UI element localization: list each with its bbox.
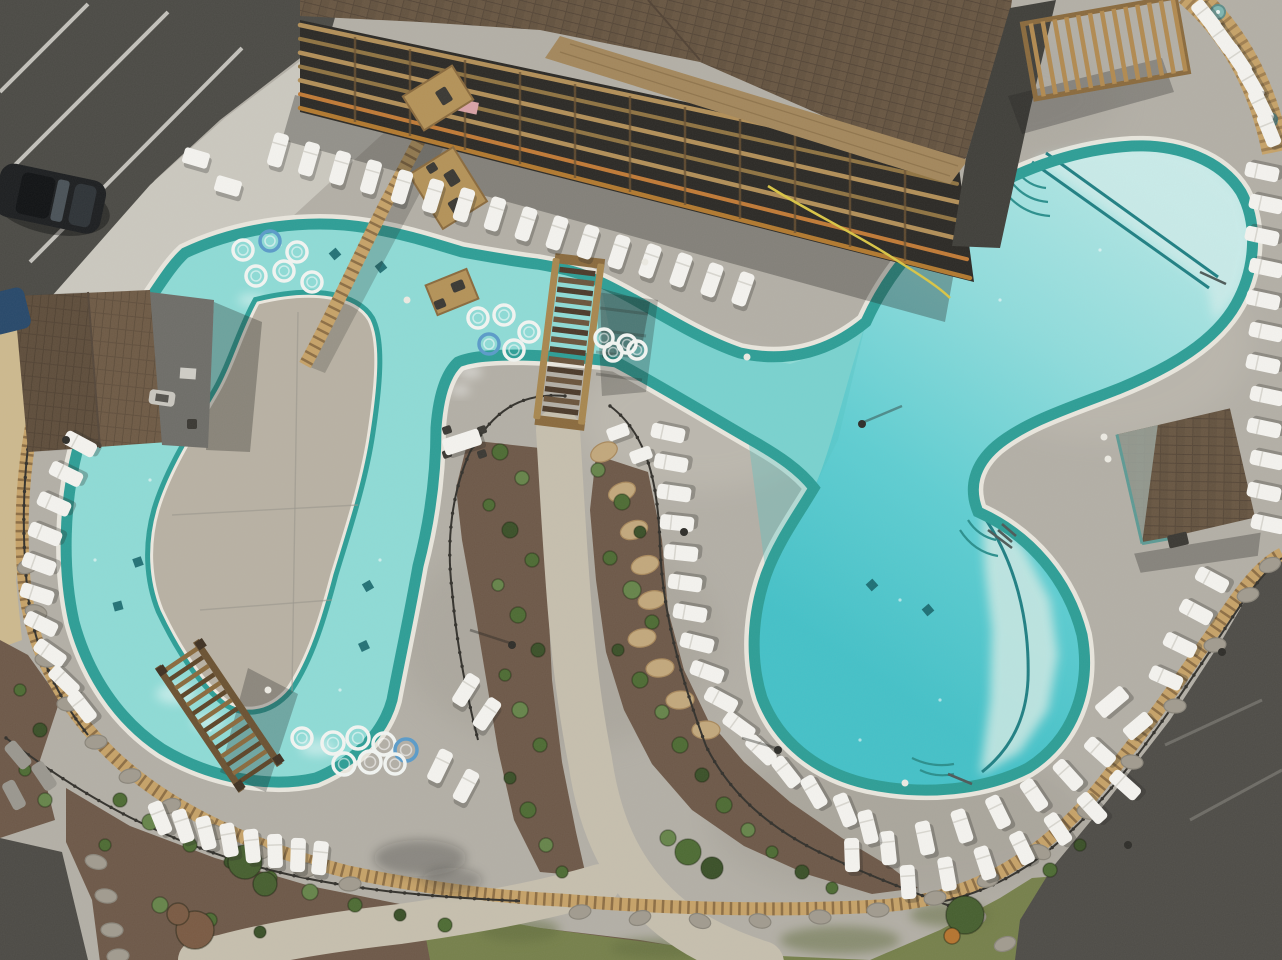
photo-grain-overlay [0, 0, 1282, 960]
scene-canvas [0, 0, 1282, 960]
aerial-resort-photo [0, 0, 1282, 960]
